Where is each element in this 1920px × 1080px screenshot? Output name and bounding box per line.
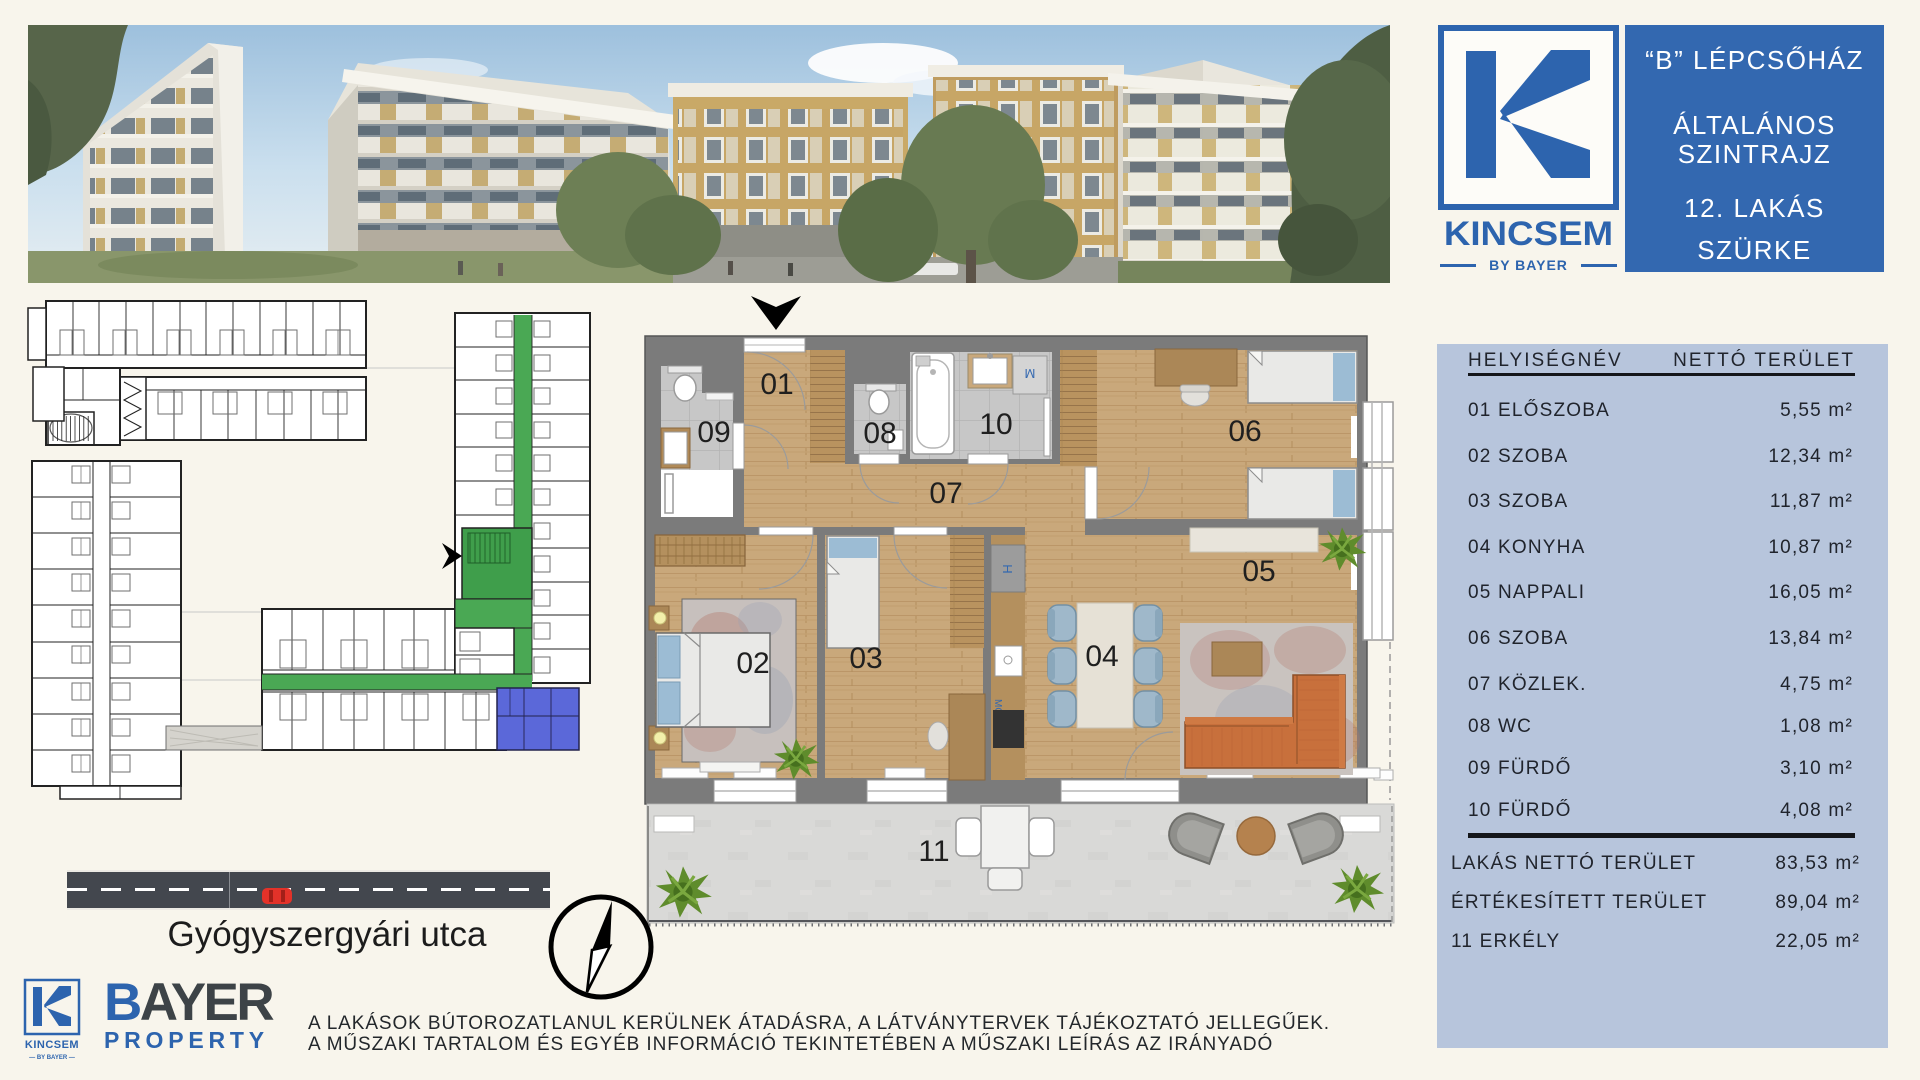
- svg-text:02: 02: [736, 647, 769, 680]
- svg-text:04: 04: [1085, 640, 1118, 673]
- svg-text:H: H: [1000, 564, 1015, 573]
- svg-text:M: M: [1025, 366, 1036, 381]
- svg-text:08: 08: [863, 417, 896, 450]
- svg-text:09: 09: [697, 416, 730, 449]
- svg-text:— BY BAYER —: — BY BAYER —: [29, 1055, 75, 1061]
- svg-text:10: 10: [979, 408, 1012, 441]
- svg-text:KINCSEM: KINCSEM: [25, 1039, 79, 1051]
- svg-text:07: 07: [929, 477, 962, 510]
- svg-text:11: 11: [918, 835, 949, 868]
- svg-text:03: 03: [849, 642, 882, 675]
- svg-text:01: 01: [760, 368, 793, 401]
- svg-text:06: 06: [1228, 415, 1261, 448]
- svg-text:05: 05: [1242, 555, 1275, 588]
